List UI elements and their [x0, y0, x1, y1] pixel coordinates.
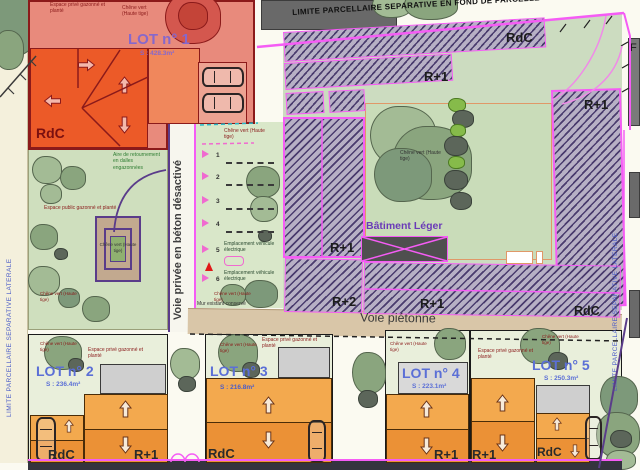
- direction-arrow-icon: [119, 436, 132, 454]
- ev-space-label: Emplacement véhicule électrique: [224, 241, 276, 254]
- limite-right-label: LIMITE PARCELLAIRE SEPARATIVE LATERALE: [612, 176, 619, 391]
- lot-3-floor-label: RdC: [208, 446, 235, 461]
- lot-2-name: LOT n° 2: [36, 363, 94, 379]
- chene-vert-label: Chêne vert (Haute tige): [224, 128, 270, 141]
- floor-label: RdC: [506, 30, 533, 45]
- car-icon: [202, 67, 244, 87]
- chene-vert-label: Chêne vert (Haute tige): [390, 341, 428, 352]
- chene-vert-label: Chêne vert (Haute tige): [40, 291, 78, 302]
- chene-vert-label: Chêne vert (Haute tige): [542, 334, 580, 345]
- stall-divider: [226, 184, 274, 186]
- stall-marker-icon: [202, 196, 209, 204]
- espace-public-label: Espace public gazonné et planté: [44, 205, 144, 211]
- terrace: [100, 364, 166, 394]
- chene-vert-label: Chêne vert (Haute tige): [40, 341, 78, 352]
- aire-retournement-label: Aire de retournement en dalles engazonné…: [113, 152, 163, 171]
- building-annex: [285, 91, 324, 115]
- lot-1-floor-label: RdC: [36, 125, 65, 141]
- stall-number: 2: [216, 174, 220, 181]
- site-plan-canvas: Voie piétonne Aire de retournement en da…: [0, 0, 640, 470]
- lot-5-annex-upper: [536, 413, 590, 439]
- chene-vert-label: Chêne vert (Haute tige): [400, 150, 442, 163]
- stall-number: 1: [216, 152, 220, 159]
- direction-arrow-icon: [118, 116, 131, 134]
- lot-1-garage: [148, 48, 200, 124]
- stall-marker-icon: [202, 245, 209, 253]
- voie-privee-label: Voie privée en béton désactivé: [172, 120, 184, 320]
- direction-arrow-icon: [64, 419, 74, 433]
- tree-icon: [60, 166, 86, 190]
- limite-left-label: LIMITE PARCELLAIRE SEPARATIVE LATERALE: [6, 192, 13, 417]
- lot-1-area: S : 428.3m²: [140, 50, 174, 57]
- stall-marker-icon: [202, 172, 209, 180]
- neighbor-building: [629, 290, 640, 338]
- tree-icon: [246, 166, 280, 198]
- terrace: [278, 347, 330, 378]
- direction-arrow-icon: [420, 400, 433, 418]
- lot-5-floor-label: RdC: [537, 445, 562, 459]
- balcony: [536, 251, 543, 264]
- tree-icon: [40, 184, 62, 204]
- lot-3-area: S : 216.8m²: [220, 384, 254, 391]
- stall-number: 3: [216, 198, 220, 205]
- direction-arrow-icon: [496, 394, 509, 412]
- floor-label: R+1: [424, 69, 448, 84]
- direction-arrow-icon: [78, 59, 96, 72]
- bush-icon: [178, 376, 196, 392]
- espace-prive-label: Espace privé gazonné et planté: [262, 337, 324, 350]
- stall-divider: [226, 162, 274, 164]
- direction-arrow-icon: [118, 76, 131, 94]
- direction-arrow-icon: [262, 431, 275, 449]
- building-annex: [328, 89, 365, 113]
- tree-icon: [434, 328, 466, 360]
- lot-4-name: LOT n° 4: [402, 365, 460, 381]
- lot-2-floor-label: RdC: [48, 447, 75, 462]
- stall-divider: [226, 208, 274, 210]
- lot-1-name: LOT n° 1: [128, 31, 190, 48]
- lot-5-area: S : 250.3m²: [544, 375, 578, 382]
- espace-prive-label: Espace privé gazonné et planté: [478, 348, 538, 361]
- building-block-west: [283, 117, 365, 258]
- balcony: [506, 251, 533, 264]
- car-icon: [202, 93, 244, 113]
- tree-icon: [82, 296, 110, 322]
- direction-arrow-icon: [262, 396, 275, 414]
- tree-icon: [450, 192, 472, 210]
- tree-icon: [352, 352, 386, 394]
- car-icon: [308, 420, 326, 462]
- tree-icon: [0, 30, 24, 70]
- stall-marker-icon: [202, 219, 209, 227]
- chene-vert-label: Chêne vert (Haute tige): [122, 5, 158, 18]
- direction-arrow-icon: [420, 437, 433, 455]
- lot-3-name: LOT n° 3: [210, 363, 268, 379]
- bush-icon: [54, 248, 68, 260]
- stall-number: 6: [216, 276, 220, 283]
- lot-2-area: S : 236.4m²: [46, 381, 80, 388]
- bush-icon: [610, 430, 632, 448]
- tree-icon: [32, 156, 62, 184]
- lot-2-floor-label: R+1: [134, 447, 158, 462]
- ev-car-symbol: [224, 256, 244, 266]
- stall-number: 5: [216, 247, 220, 254]
- tree-icon: [444, 136, 468, 156]
- lot-4-floor-label: R+1: [434, 447, 458, 462]
- stall-marker-icon: [202, 274, 209, 282]
- mur-label: Mur existant conservé: [197, 301, 246, 307]
- tree-icon: [448, 156, 465, 169]
- car-icon: [585, 416, 602, 460]
- batiment-leger-footprint: [361, 236, 448, 262]
- chene-vert-label: Chêne vert (Haute tige): [98, 242, 138, 253]
- lot-4-area: S : 223.1m²: [412, 383, 446, 390]
- direction-arrow-icon: [552, 417, 562, 431]
- voie-pietonne-label: Voie piétonne: [360, 310, 436, 325]
- stall-marker-icon: [202, 150, 209, 158]
- tree-icon: [178, 2, 208, 30]
- chene-vert-label: Chêne vert (Haute tige): [220, 342, 258, 353]
- floor-label: R+2: [332, 294, 356, 309]
- bush-icon: [358, 390, 378, 408]
- tree-icon: [444, 170, 468, 190]
- floor-label: R+1: [330, 240, 354, 255]
- neighbor-building: [629, 172, 640, 218]
- terrace: [536, 385, 590, 414]
- direction-arrow-icon: [119, 400, 132, 418]
- ev-space-label: Emplacement véhicule électrique: [224, 270, 276, 283]
- espace-prive-label: Espace privé gazonné et planté: [50, 2, 114, 15]
- floor-label: R+1: [420, 296, 444, 311]
- lot-5-name: LOT n° 5: [532, 357, 590, 373]
- espace-prive-label: Espace privé gazonné et planté: [88, 347, 148, 360]
- direction-arrow-icon: [570, 444, 580, 458]
- floor-label: RdC: [574, 304, 600, 318]
- direction-arrow-icon: [44, 95, 62, 108]
- batiment-leger-label: Bâtiment Léger: [366, 220, 442, 232]
- stall-number: 4: [216, 221, 220, 228]
- stall-divider: [226, 231, 274, 233]
- direction-arrow-icon: [496, 434, 509, 452]
- tree-icon: [30, 224, 58, 250]
- floor-label: R+1: [584, 97, 608, 112]
- lot-5-floor-label: R+1: [472, 447, 496, 462]
- edge-partial-text: F: [630, 42, 637, 54]
